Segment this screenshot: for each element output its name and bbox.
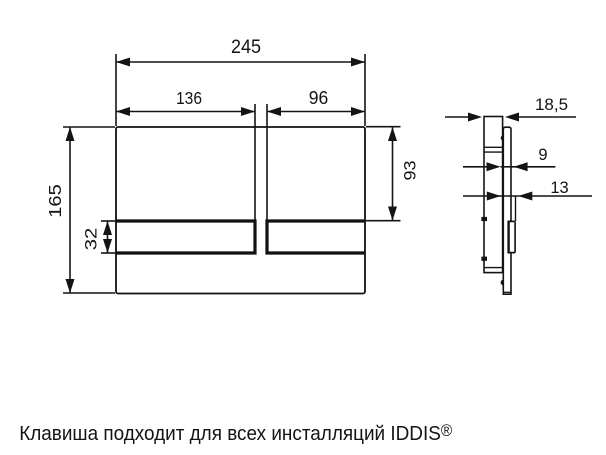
svg-text:18,5: 18,5 [535, 95, 568, 114]
svg-text:93: 93 [401, 161, 420, 181]
svg-text:32: 32 [81, 228, 100, 251]
svg-text:165: 165 [45, 184, 65, 218]
svg-text:9: 9 [538, 146, 547, 164]
svg-text:13: 13 [550, 179, 568, 197]
svg-text:96: 96 [309, 88, 329, 108]
svg-text:Клавиша подходит для всех инст: Клавиша подходит для всех инсталляций ID… [19, 422, 452, 445]
svg-text:136: 136 [176, 88, 202, 108]
svg-text:245: 245 [231, 37, 261, 58]
